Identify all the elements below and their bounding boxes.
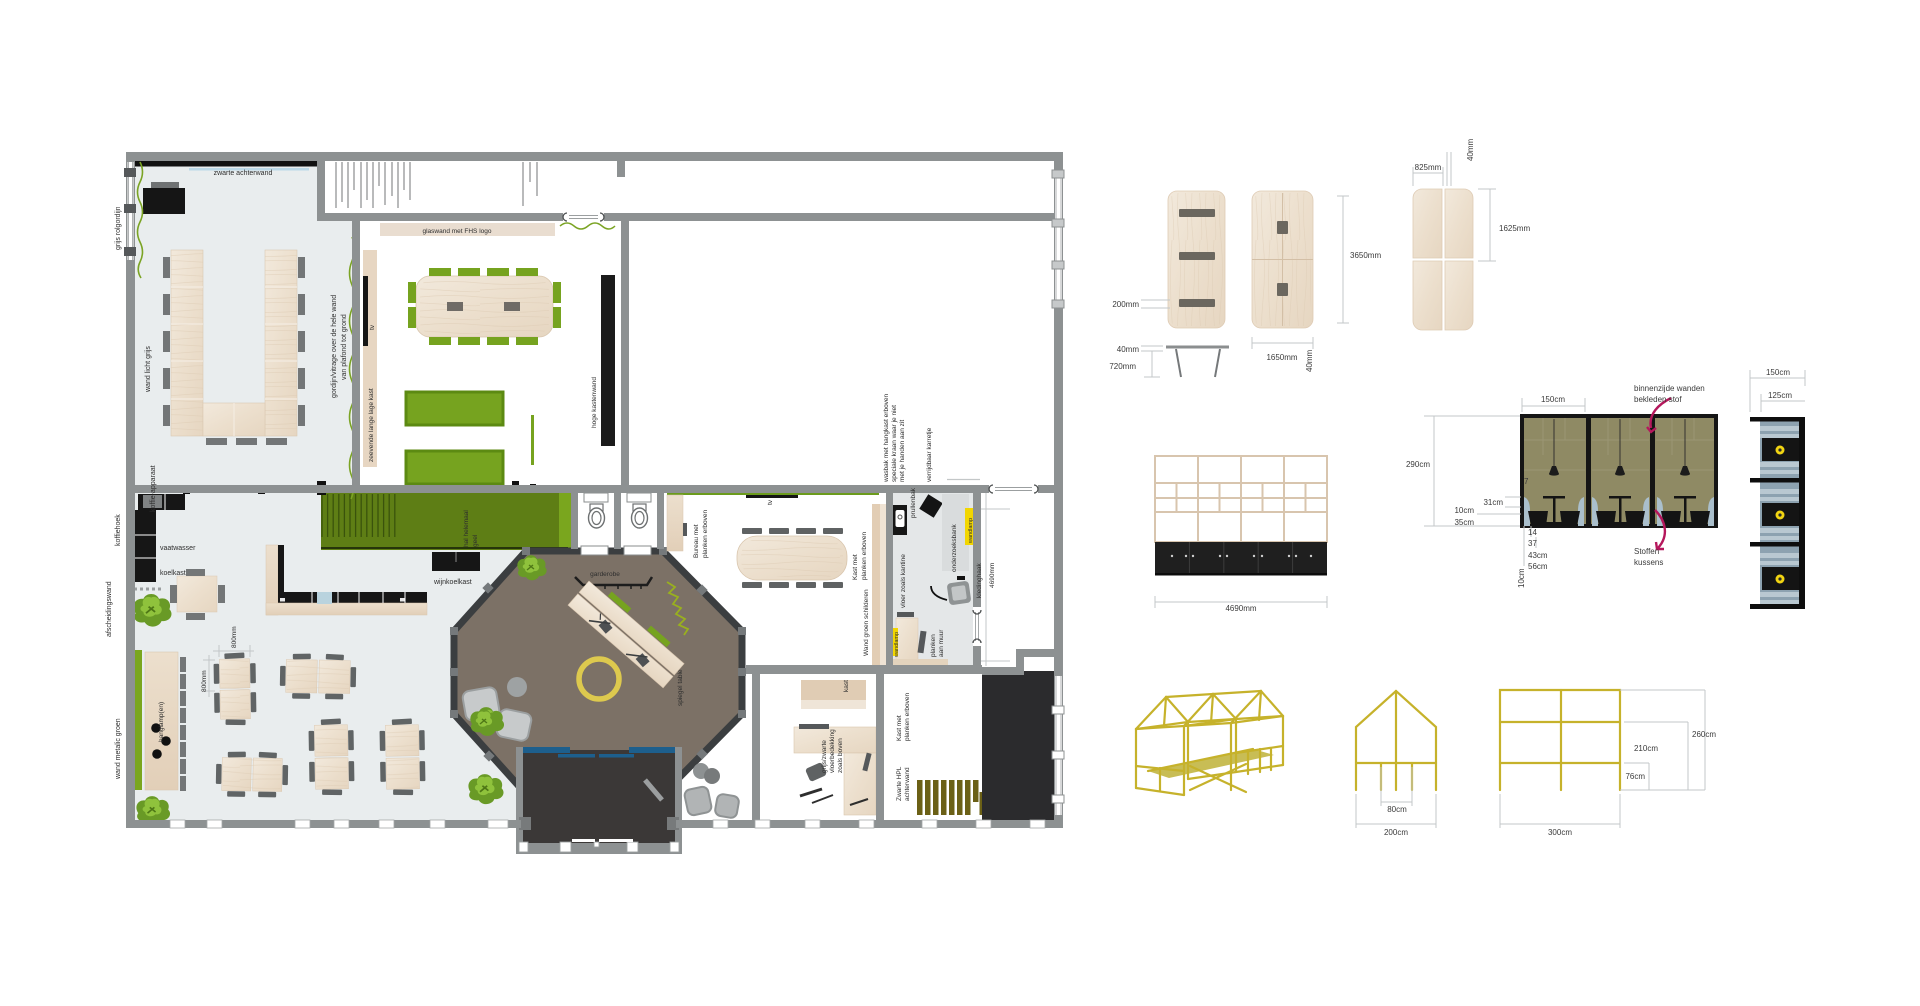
svg-text:wand metalic groen: wand metalic groen xyxy=(115,718,122,780)
svg-text:onderzoeksbank: onderzoeksbank xyxy=(951,524,958,572)
svg-text:tv: tv xyxy=(767,499,774,505)
svg-text:garderobe: garderobe xyxy=(590,571,620,578)
svg-text:koffiehoek: koffiehoek xyxy=(115,514,122,546)
svg-text:planken erboven: planken erboven xyxy=(904,693,911,741)
svg-text:10cm: 10cm xyxy=(1454,506,1474,515)
svg-text:glaswand met FHS logo: glaswand met FHS logo xyxy=(422,228,491,235)
svg-text:wijnkoelkast: wijnkoelkast xyxy=(433,579,472,586)
svg-text:Stoffen: Stoffen xyxy=(1634,547,1659,556)
svg-text:verrijdbaar karretje: verrijdbaar karretje xyxy=(926,427,933,482)
svg-text:wandlamp: wandlamp xyxy=(894,632,900,658)
svg-text:31cm: 31cm xyxy=(1483,498,1503,507)
svg-text:geel: geel xyxy=(472,534,479,547)
svg-text:40mm: 40mm xyxy=(1305,349,1314,372)
svg-text:koffie-apparaat: koffie-apparaat xyxy=(150,465,157,512)
svg-text:kussens: kussens xyxy=(1634,558,1663,567)
svg-text:planken erboven: planken erboven xyxy=(861,532,868,580)
svg-text:40mm: 40mm xyxy=(1466,138,1475,161)
svg-text:825mm: 825mm xyxy=(1415,163,1442,172)
svg-text:bekleden stof: bekleden stof xyxy=(1634,395,1682,404)
svg-text:Kast met: Kast met xyxy=(896,715,903,741)
svg-text:vaatwasser: vaatwasser xyxy=(160,545,196,552)
svg-text:200mm: 200mm xyxy=(1112,300,1139,309)
svg-text:7: 7 xyxy=(1524,477,1529,486)
svg-text:kledinghaak: kledinghaak xyxy=(976,563,983,598)
svg-text:35cm: 35cm xyxy=(1454,518,1474,527)
svg-text:80cm: 80cm xyxy=(1387,805,1407,814)
svg-text:56cm: 56cm xyxy=(1528,562,1548,571)
svg-text:4690mm: 4690mm xyxy=(1225,604,1256,613)
svg-text:40mm: 40mm xyxy=(1117,345,1140,354)
svg-text:150cm: 150cm xyxy=(1766,368,1790,377)
svg-text:300cm: 300cm xyxy=(1548,828,1572,837)
svg-text:76cm: 76cm xyxy=(1625,772,1645,781)
svg-text:290cm: 290cm xyxy=(1406,460,1430,469)
svg-text:grijs rolgordijn: grijs rolgordijn xyxy=(115,206,122,250)
svg-text:800mm: 800mm xyxy=(201,670,208,692)
svg-text:afscheidingswand: afscheidingswand xyxy=(106,581,113,637)
svg-text:vloerbedekking: vloerbedekking xyxy=(829,729,836,773)
svg-text:koelkast: koelkast xyxy=(160,570,186,577)
svg-text:prullenbak: prullenbak xyxy=(910,487,917,518)
svg-text:grijs/zwarte: grijs/zwarte xyxy=(821,740,828,773)
svg-text:200cm: 200cm xyxy=(1384,828,1408,837)
svg-text:planken: planken xyxy=(930,634,937,657)
svg-text:zoals boven: zoals boven xyxy=(837,738,844,773)
svg-text:43cm: 43cm xyxy=(1528,551,1548,560)
svg-text:kast: kast xyxy=(843,680,850,692)
svg-text:binnenzijde wanden: binnenzijde wanden xyxy=(1634,384,1705,393)
svg-text:met je handen aan zit: met je handen aan zit xyxy=(899,420,906,482)
svg-text:800mm: 800mm xyxy=(231,626,238,648)
svg-text:wasbak met hangkast erboven: wasbak met hangkast erboven xyxy=(883,393,890,483)
svg-text:aan muur: aan muur xyxy=(938,629,945,657)
svg-text:wandlamp: wandlamp xyxy=(968,518,974,544)
svg-text:gordijn/vitrage over de hele w: gordijn/vitrage over de hele wand xyxy=(331,295,338,398)
svg-text:achterwand: achterwand xyxy=(904,767,911,801)
svg-text:hanglamp(en): hanglamp(en) xyxy=(158,702,165,742)
svg-text:vloer zoals kantine: vloer zoals kantine xyxy=(900,554,907,608)
svg-text:1625mm: 1625mm xyxy=(1499,224,1530,233)
svg-text:Bureau met: Bureau met xyxy=(693,524,700,558)
svg-text:210cm: 210cm xyxy=(1634,744,1658,753)
svg-text:4690mm: 4690mm xyxy=(989,563,996,588)
svg-text:tv: tv xyxy=(369,324,376,330)
svg-text:37: 37 xyxy=(1528,539,1537,548)
svg-text:3650mm: 3650mm xyxy=(1350,251,1381,260)
svg-text:speciale kraan waar je niet: speciale kraan waar je niet xyxy=(891,405,898,482)
svg-text:Zwarte HPL: Zwarte HPL xyxy=(896,766,903,801)
svg-text:10cm: 10cm xyxy=(1517,568,1526,588)
svg-text:hal helemaal: hal helemaal xyxy=(463,510,470,547)
svg-text:zwarte achterwand: zwarte achterwand xyxy=(214,170,273,177)
svg-text:Wand groen schilderen: Wand groen schilderen xyxy=(863,589,870,656)
svg-text:wand licht grijs: wand licht grijs xyxy=(145,346,152,393)
svg-text:planken erboven: planken erboven xyxy=(702,510,709,558)
svg-text:spiegel table: spiegel table xyxy=(677,669,684,706)
svg-text:van plafond tot grond: van plafond tot grond xyxy=(341,314,348,380)
svg-text:hoge kastenwand: hoge kastenwand xyxy=(591,377,598,428)
svg-text:zeevende lange lage kast: zeevende lange lage kast xyxy=(368,388,375,462)
svg-text:125cm: 125cm xyxy=(1768,391,1792,400)
svg-text:260cm: 260cm xyxy=(1692,730,1716,739)
svg-text:150cm: 150cm xyxy=(1541,395,1565,404)
svg-text:Kast met: Kast met xyxy=(852,554,859,580)
svg-text:14: 14 xyxy=(1528,528,1537,537)
svg-text:720mm: 720mm xyxy=(1109,362,1136,371)
svg-text:1650mm: 1650mm xyxy=(1266,353,1297,362)
